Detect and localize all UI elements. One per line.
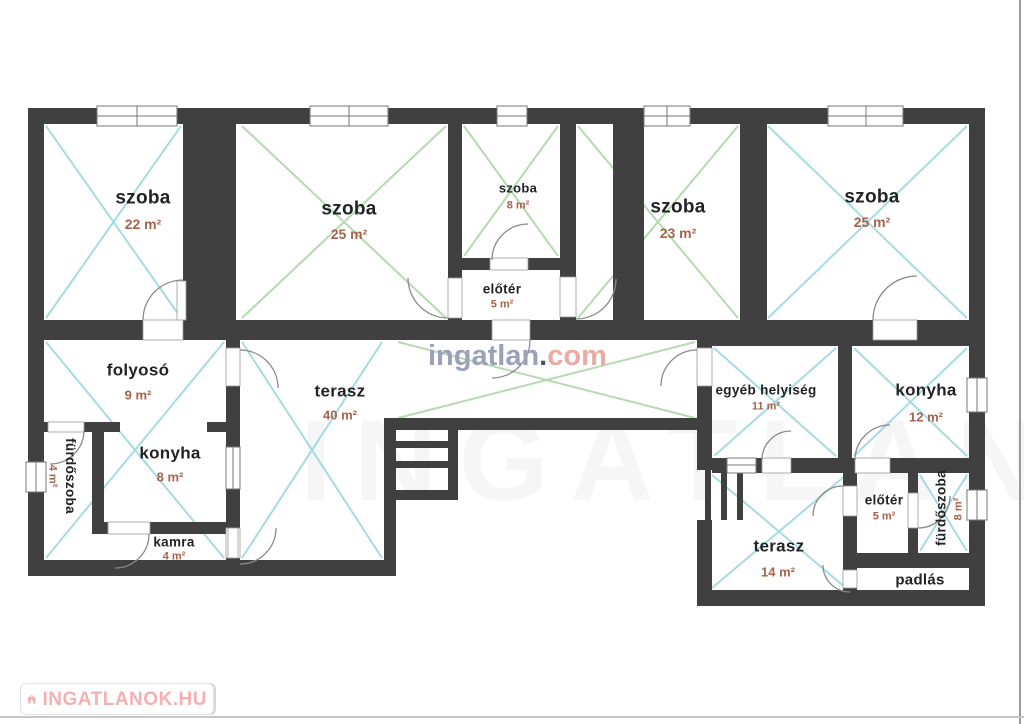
ingatlanok-hu-logo: INGATLANOK.HU: [20, 683, 214, 715]
room-label-kamra: kamra: [153, 535, 194, 549]
room-label-szoba-8: szoba: [499, 182, 537, 195]
room-area-eloter-top: 5 m²: [491, 300, 514, 311]
room-area-szoba-23: 23 m²: [660, 226, 697, 240]
room-label-szoba-25-left: szoba: [321, 200, 376, 219]
room-label-eloter-bottom: előtér: [865, 493, 904, 507]
room-label-padlas: padlás: [895, 573, 944, 588]
brand-text: INGATLANOK.HU: [43, 690, 207, 709]
room-area-egyeb-helyiseg: 11 m²: [752, 402, 780, 413]
room-label-szoba-23: szoba: [650, 198, 705, 217]
room-area-szoba-8: 8 m²: [507, 201, 530, 212]
room-label-szoba-22: szoba: [115, 189, 170, 208]
exterior-steps: [705, 470, 743, 520]
room-label-konyha-12: konyha: [895, 382, 956, 399]
room-area-terasz-40: 40 m²: [323, 409, 357, 422]
room-label-eloter-top: előtér: [483, 282, 522, 296]
floorplan-page: INGATLAN: [0, 0, 1024, 724]
room-label-terasz-40: terasz: [315, 383, 366, 400]
room-label-egyeb-helyiseg: egyéb helyiség: [716, 383, 817, 397]
room-label-konyha-8: konyha: [139, 445, 200, 462]
house-icon: [27, 686, 37, 712]
room-area-szoba-25-left: 25 m²: [331, 227, 368, 241]
room-area-kamra: 4 m²: [163, 552, 186, 563]
room-area-folyoso: 9 m²: [125, 389, 152, 402]
room-area-konyha-12: 12 m²: [909, 411, 943, 424]
watermark-name: ingatlan: [428, 340, 539, 372]
room-label-terasz-14: terasz: [754, 538, 805, 555]
page-edge-line-right: [1019, 0, 1021, 724]
watermark-tld: com: [547, 340, 607, 372]
room-label-furdoszoba-right: fürdőszoba: [934, 470, 948, 546]
room-label-furdoszoba-left: fürdőszoba: [63, 438, 77, 514]
room-area-eloter-bottom: 5 m²: [873, 512, 896, 523]
green-diagonals: [242, 126, 738, 418]
room-area-konyha-8: 8 m²: [157, 471, 184, 484]
room-area-furdoszoba-left: 4 m²: [47, 465, 58, 488]
page-edge-line-bottom: [0, 716, 1024, 718]
room-label-szoba-25-right: szoba: [844, 188, 899, 207]
ingatlan-watermark: ingatlan.com: [428, 342, 607, 371]
room-area-terasz-14: 14 m²: [761, 566, 795, 579]
room-area-szoba-22: 22 m²: [125, 217, 162, 231]
room-area-furdoszoba-right: 8 m²: [954, 498, 965, 521]
room-area-szoba-25-right: 25 m²: [854, 215, 891, 229]
stairs: [396, 441, 448, 468]
room-label-folyoso: folyosó: [107, 362, 170, 379]
